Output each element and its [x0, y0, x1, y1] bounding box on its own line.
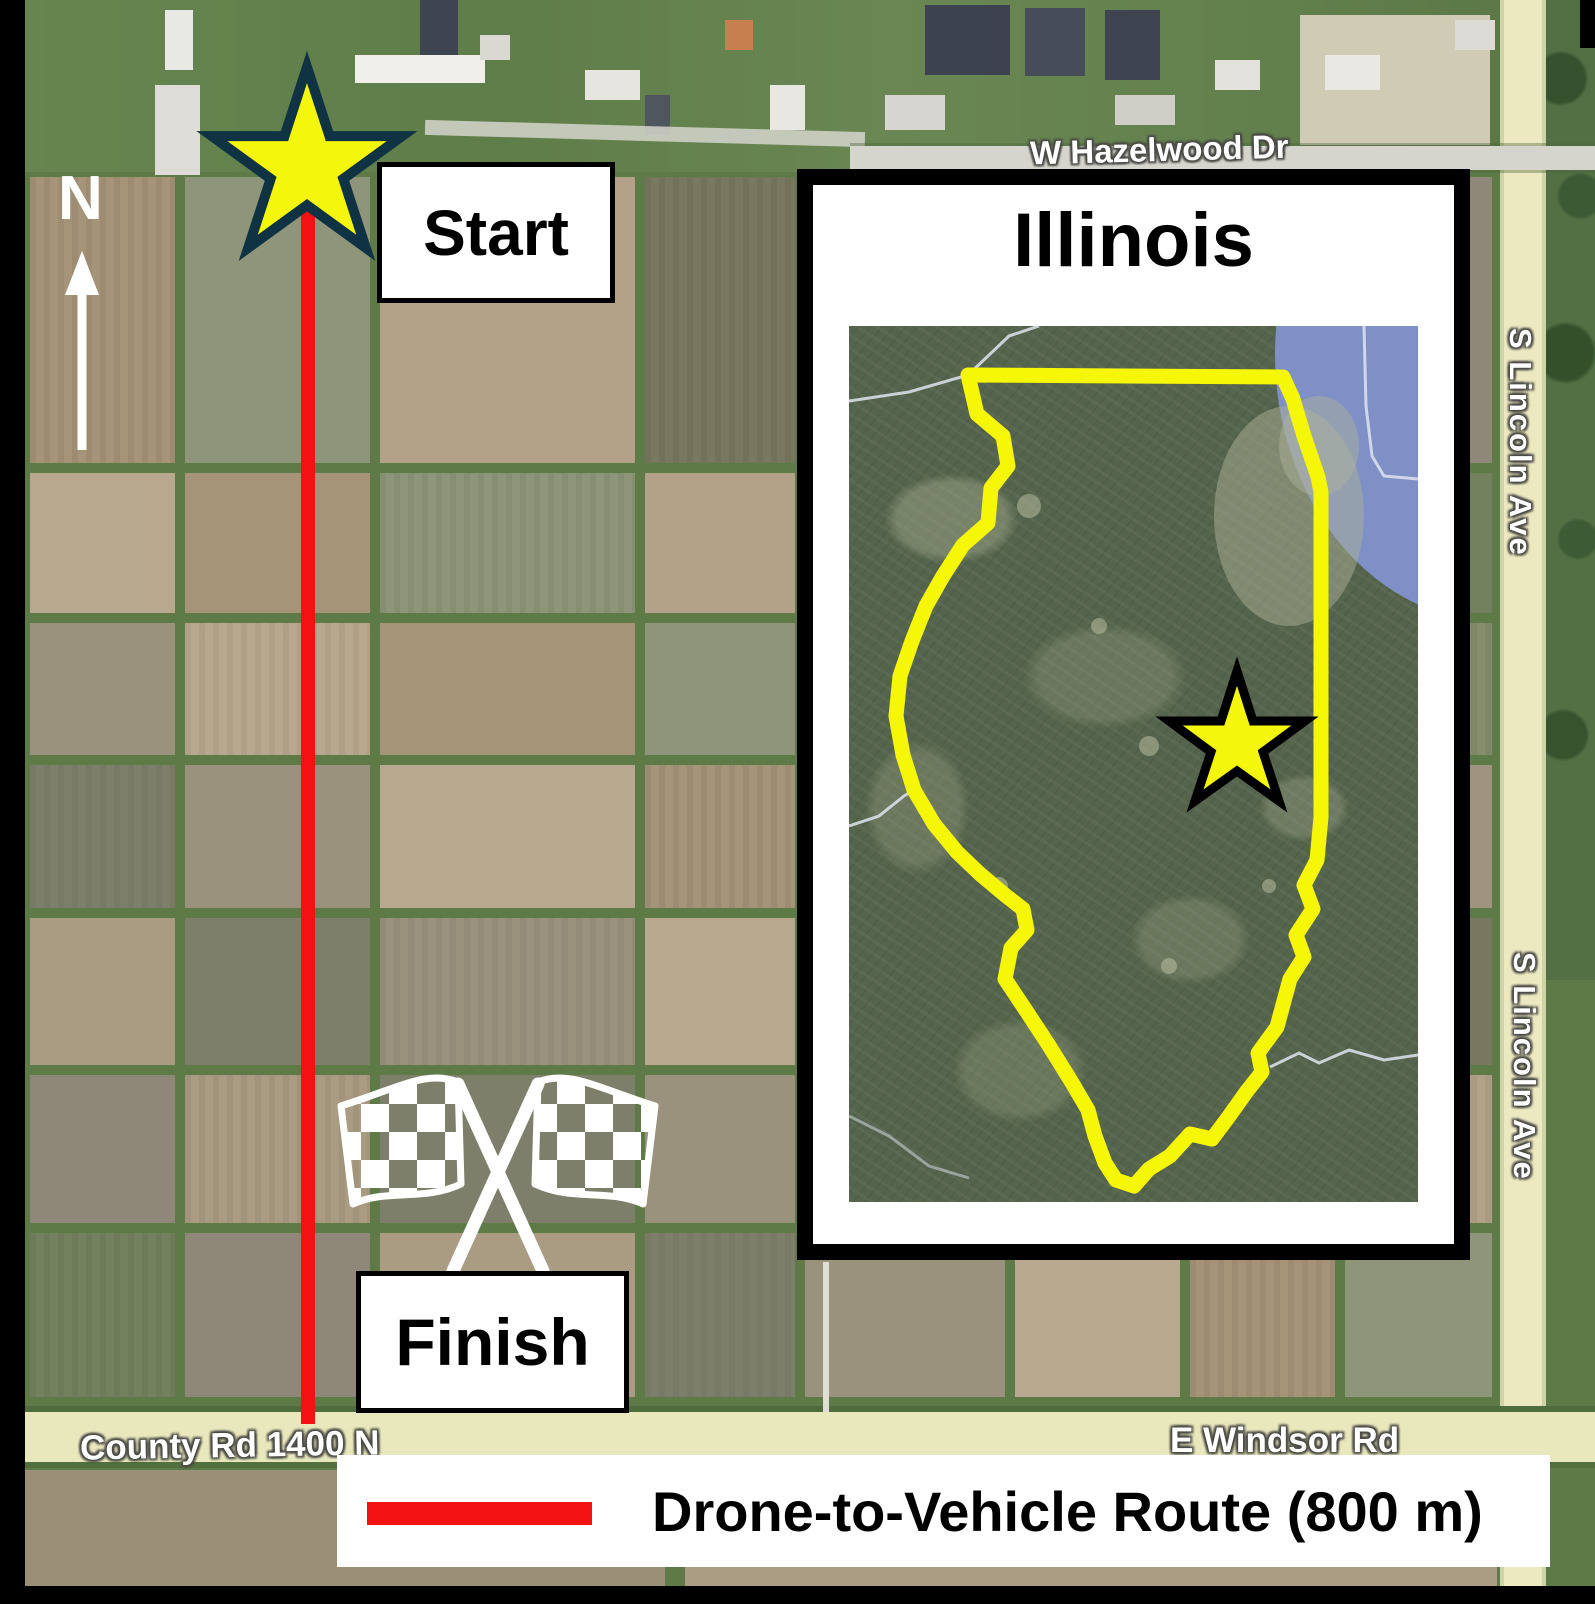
inset-location-star-icon	[1169, 671, 1305, 801]
field-patch	[645, 1075, 795, 1223]
building	[165, 10, 193, 70]
road-label-lincoln-upper: S Lincoln Ave	[1502, 328, 1538, 557]
field-patch	[645, 918, 795, 1065]
building	[1105, 10, 1160, 80]
illinois-inset-panel: Illinois	[797, 169, 1470, 1260]
building	[480, 35, 510, 60]
field-patch	[645, 765, 795, 908]
building	[925, 5, 1010, 75]
road-label-county-rd: County Rd 1400 N	[80, 1423, 380, 1468]
building	[725, 20, 753, 50]
building	[1325, 55, 1380, 90]
road-label-lincoln-lower: S Lincoln Ave	[1506, 952, 1542, 1181]
field-patch	[380, 473, 635, 613]
field-patch	[645, 473, 795, 613]
legend-box: Drone-to-Vehicle Route (800 m)	[337, 1455, 1550, 1567]
building	[1215, 60, 1260, 90]
inset-title: Illinois	[813, 197, 1454, 284]
field-patch	[30, 765, 175, 908]
field-patch	[380, 623, 635, 755]
building	[420, 0, 458, 55]
field-patch	[380, 918, 635, 1065]
field-patch	[380, 765, 635, 908]
finish-label-box: Finish	[356, 1271, 629, 1413]
building	[1455, 20, 1495, 50]
road-label-hazelwood: W Hazelwood Dr	[1030, 128, 1289, 173]
building	[1115, 95, 1175, 125]
start-label: Start	[423, 196, 569, 270]
map-figure-canvas: W Hazelwood Dr S Lincoln Ave S Lincoln A…	[0, 0, 1595, 1604]
field-patch	[30, 623, 175, 755]
building	[885, 95, 945, 130]
field-patch	[645, 1233, 795, 1397]
field-patch	[185, 473, 370, 613]
building	[1025, 8, 1085, 76]
field-patch	[30, 1075, 175, 1223]
farm-access-path	[823, 1262, 829, 1412]
building	[155, 85, 200, 175]
route-legend-label: Drone-to-Vehicle Route (800 m)	[652, 1455, 1483, 1567]
road-s-lincoln-ave	[1500, 0, 1546, 1586]
drone-route-line	[301, 168, 315, 1424]
building	[585, 70, 640, 100]
field-patch	[645, 177, 795, 463]
field-patch	[185, 765, 370, 908]
field-patch	[30, 1233, 175, 1397]
route-legend-swatch	[367, 1502, 592, 1525]
finish-label: Finish	[395, 1304, 589, 1380]
illinois-inset-map	[849, 326, 1418, 1202]
field-patch	[30, 473, 175, 613]
north-arrow-icon	[45, 243, 125, 463]
checkered-flags-icon	[333, 1076, 663, 1276]
field-patch	[185, 918, 370, 1065]
building	[770, 85, 805, 130]
field-patch	[645, 623, 795, 755]
illinois-map-graphics	[849, 326, 1418, 1202]
field-patch	[30, 918, 175, 1065]
start-label-box: Start	[377, 162, 615, 303]
field-patch	[185, 623, 370, 755]
north-label: N	[58, 168, 103, 230]
corner-mask	[1580, 0, 1595, 48]
